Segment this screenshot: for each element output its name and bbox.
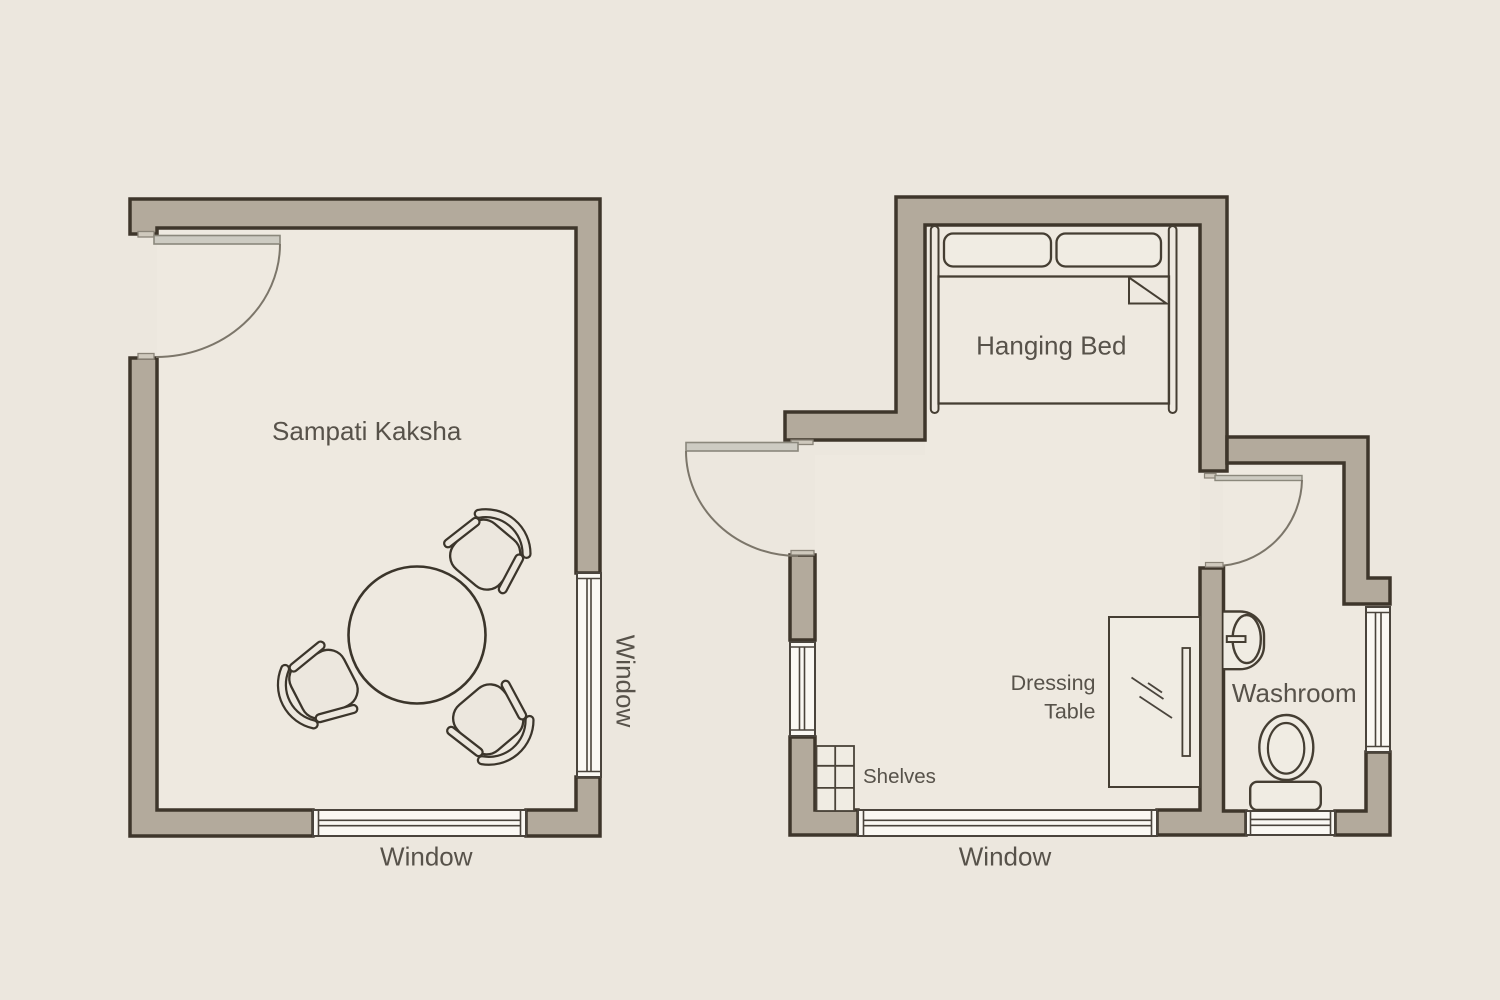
svg-text:Table: Table (1044, 700, 1095, 724)
svg-text:Window: Window (611, 635, 641, 728)
svg-text:Window: Window (959, 842, 1052, 872)
svg-text:Window: Window (380, 842, 473, 872)
svg-text:Sampati Kaksha: Sampati Kaksha (272, 416, 462, 446)
svg-text:Shelves: Shelves (863, 765, 936, 788)
svg-text:Hanging Bed: Hanging Bed (976, 331, 1126, 361)
svg-text:Washroom: Washroom (1232, 678, 1357, 708)
svg-text:Dressing: Dressing (1011, 671, 1096, 695)
